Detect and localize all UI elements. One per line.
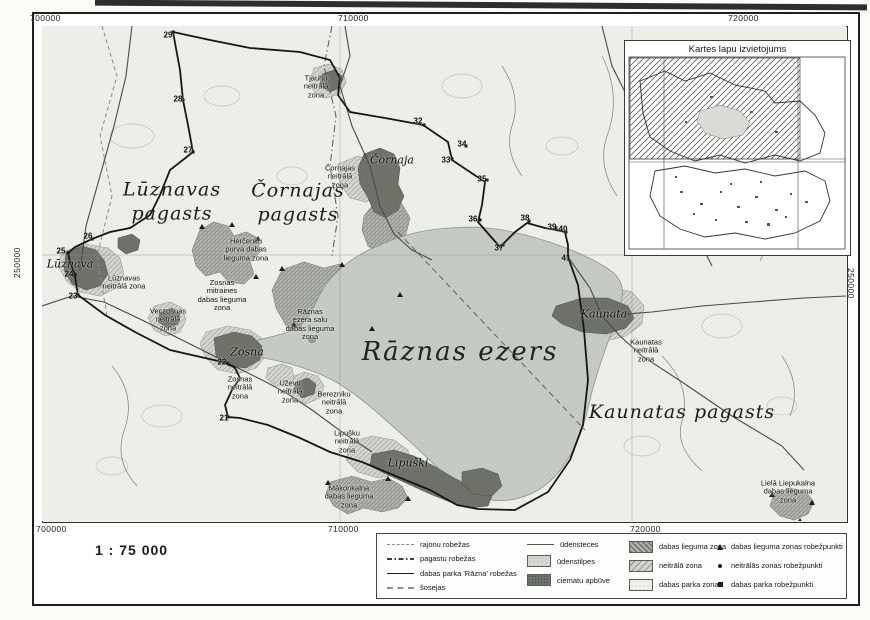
label-luznavas-pagasts: Lūznavas pagasts — [123, 178, 221, 226]
boundary-point-41: 41 — [562, 254, 571, 263]
label-cornaja: Čornaja — [370, 154, 414, 167]
legend-item-neitralas-robezpunkti: neitrālās zonas robežpunkti — [715, 556, 843, 575]
label-lipuski: Lipuški — [388, 457, 429, 470]
boundary-point-38: 38 — [521, 214, 530, 223]
legend-item-lieguma-robezpunkti: dabas lieguma zonas robežpunkti — [715, 537, 843, 556]
boundary-point-25: 25 — [57, 247, 66, 256]
label-hercenku-zone: Herčenku purva dabas lieguma zona — [224, 237, 269, 262]
coord-right-250000: 250000 — [846, 268, 856, 299]
waterbody-swatch — [527, 555, 551, 567]
legend-col-water: ūdensteces ūdenstilpes ciematu apbūve — [527, 537, 610, 590]
coord-left-250000: 250000 — [12, 247, 22, 278]
dot-marker-icon — [715, 564, 725, 568]
legend-col-lines: rajonu robežas pagastu robežas dabas par… — [387, 537, 517, 595]
park-zone-swatch — [629, 579, 653, 591]
coord-bottom-700000: 700000 — [36, 524, 67, 534]
reserve-zone-swatch — [629, 541, 653, 553]
label-liela-liepukalna-zone: Lielā Liepukalna dabas lieguma zona — [761, 479, 815, 504]
boundary-point-24: 24 — [65, 270, 74, 279]
boundary-point-35: 35 — [478, 175, 487, 184]
boundary-point-28: 28 — [174, 95, 183, 104]
legend-item-neitrala-zona: neitrālā zona — [629, 556, 726, 575]
label-kaunatas-pagasts: Kaunatas pagasts — [589, 401, 775, 425]
parish-boundary-line-symbol — [387, 558, 414, 560]
legend-item-rajonu-robezas: rajonu robežas — [387, 537, 517, 552]
boundary-point-26: 26 — [84, 232, 93, 241]
village-built-up-swatch — [527, 574, 551, 586]
park-boundary-line-symbol — [387, 573, 414, 574]
triangle-marker-icon — [715, 544, 725, 550]
label-zosna: Zosna — [230, 346, 264, 359]
label-makonkalna-zone: Mākoņkalna dabas lieguma zona — [325, 484, 374, 509]
legend-item-parka-robezpunkti: dabas parka robežpunkti — [715, 575, 843, 594]
legend-item-udenstilpes: ūdenstilpes — [527, 552, 610, 571]
legend-col-points: dabas lieguma zonas robežpunkti neitrālā… — [715, 537, 843, 594]
inset-canvas — [625, 41, 850, 255]
label-veczosnas-nz: Veczosnas neitrālā zona — [150, 307, 186, 332]
label-raznas-ezers: Rāznas ezers — [362, 337, 559, 367]
watercourse-line-symbol — [527, 544, 554, 545]
boundary-point-33: 33 — [442, 156, 451, 165]
boundary-point-29: 29 — [164, 31, 173, 40]
boundary-point-36: 36 — [469, 215, 478, 224]
label-zosnas-nz: Zosnas neitrālā zona — [228, 375, 253, 400]
legend-item-parka-robezas: dabas parka 'Rāzna' robežas — [387, 566, 517, 581]
legend-item-sosejas: šosejas — [387, 581, 517, 596]
neutral-zone-swatch — [629, 560, 653, 572]
legend-col-zones: dabas lieguma zona neitrālā zona dabas p… — [629, 537, 726, 594]
boundary-point-27: 27 — [184, 146, 193, 155]
boundary-point-22: 22 — [218, 358, 227, 367]
label-kaunatas-nz: Kaunatas neitrālā zona — [630, 338, 662, 363]
coord-top-700000: 700000 — [30, 13, 61, 23]
boundary-point-32: 32 — [414, 117, 423, 126]
legend-item-parka-zona: dabas parka zona — [629, 575, 726, 594]
boundary-point-37: 37 — [495, 244, 504, 253]
highway-line-symbol — [387, 587, 414, 589]
coord-top-720000: 720000 — [728, 13, 759, 23]
scanned-map-page: { "map": { "scale_text": "1 : 75 000", "… — [0, 0, 870, 620]
scan-artifact-bar — [95, 0, 867, 10]
boundary-point-23: 23 — [69, 292, 78, 301]
label-luznavas-nz: Lūznavas neitrālā zona — [103, 275, 146, 292]
label-raznas-salu-zone: Rāznas ezera salu dabas lieguma zona — [286, 308, 335, 342]
label-lipusku-nz: Lipušku neitrālā zona — [334, 429, 360, 454]
legend: rajonu robežas pagastu robežas dabas par… — [376, 533, 847, 599]
legend-item-pagastu-robezas: pagastu robežas — [387, 552, 517, 567]
label-berezniku-nz: Berezniku neitrālā zona — [317, 390, 350, 415]
square-marker-icon — [715, 582, 725, 587]
boundary-point-39: 39 — [548, 223, 557, 232]
coord-bottom-710000: 710000 — [328, 524, 359, 534]
label-cornajas-nz: Čornajas neitrālā zona — [325, 164, 355, 189]
label-zosnas-mitraines-zone: Zosnas mitraines dabas lieguma zona — [198, 279, 247, 313]
legend-item-ciematu-apbuve: ciematu apbūve — [527, 571, 610, 590]
label-kaunata: Kaunata — [581, 308, 627, 321]
label-tjauhu-nz: Tjauhu neitrālā zona — [304, 74, 329, 99]
legend-item-udensteces: ūdensteces — [527, 537, 610, 552]
label-uzevu-nz: Uževu neitrālā zona — [278, 379, 303, 404]
coord-top-710000: 710000 — [338, 13, 369, 23]
boundary-point-21: 21 — [220, 414, 229, 423]
inset-map: Kartes lapu izvietojums — [624, 40, 851, 256]
boundary-point-40: 40 — [559, 225, 568, 234]
boundary-point-34: 34 — [458, 140, 467, 149]
legend-item-lieguma-zona: dabas lieguma zona — [629, 537, 726, 556]
district-boundary-line-symbol — [387, 544, 414, 545]
map-scale: 1 : 75 000 — [95, 542, 168, 558]
